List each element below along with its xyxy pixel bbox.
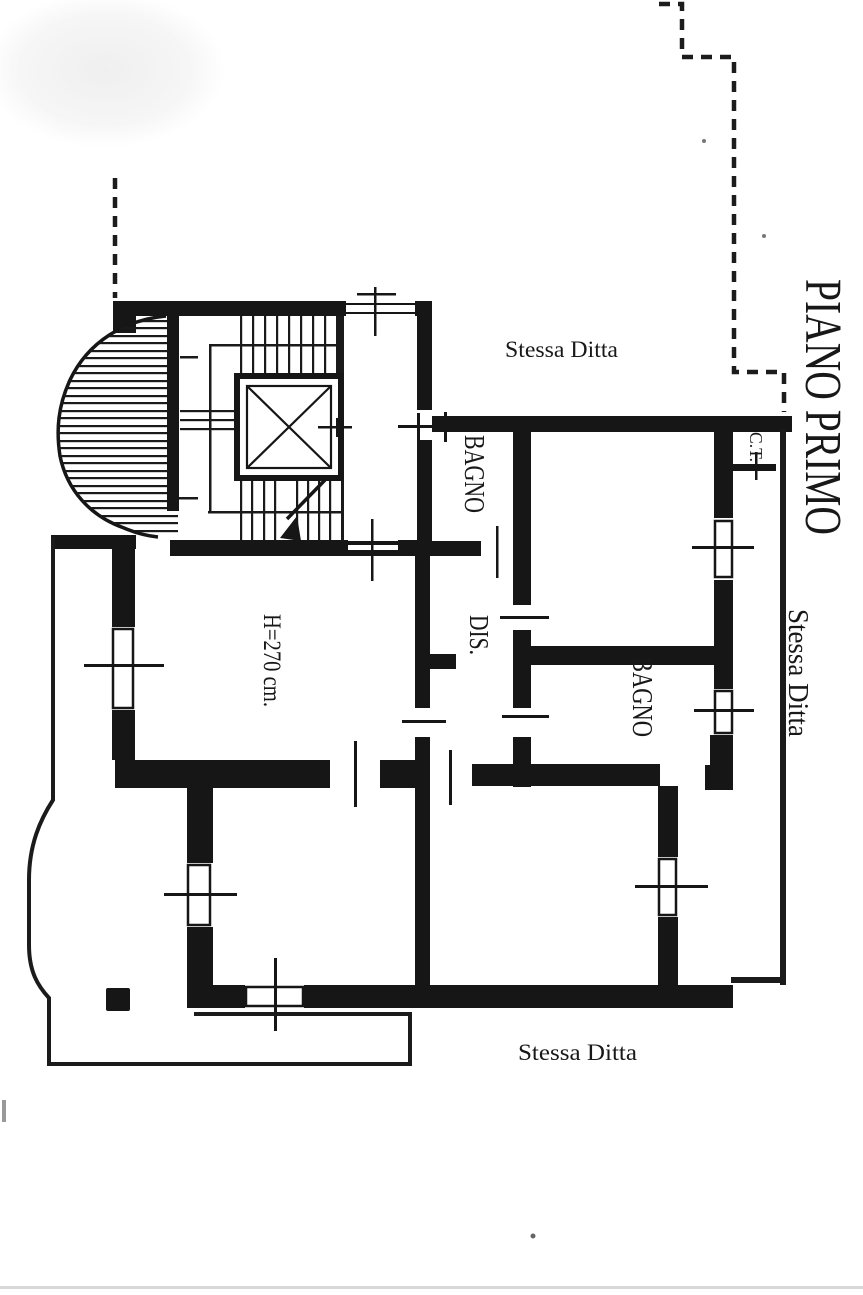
svg-text:BAGNO: BAGNO (458, 435, 490, 513)
svg-text:Stessa Ditta: Stessa Ditta (782, 609, 813, 738)
svg-text:PIANO PRIMO: PIANO PRIMO (794, 279, 851, 535)
svg-text:DIS.: DIS. (464, 615, 494, 655)
svg-text:C.T.: C.T. (746, 432, 766, 462)
svg-text:BAGNO: BAGNO (626, 657, 658, 737)
svg-text:H=270 cm.: H=270 cm. (258, 614, 285, 707)
svg-text:Stessa Ditta: Stessa Ditta (518, 1040, 637, 1065)
svg-text:Stessa Ditta: Stessa Ditta (505, 337, 618, 362)
